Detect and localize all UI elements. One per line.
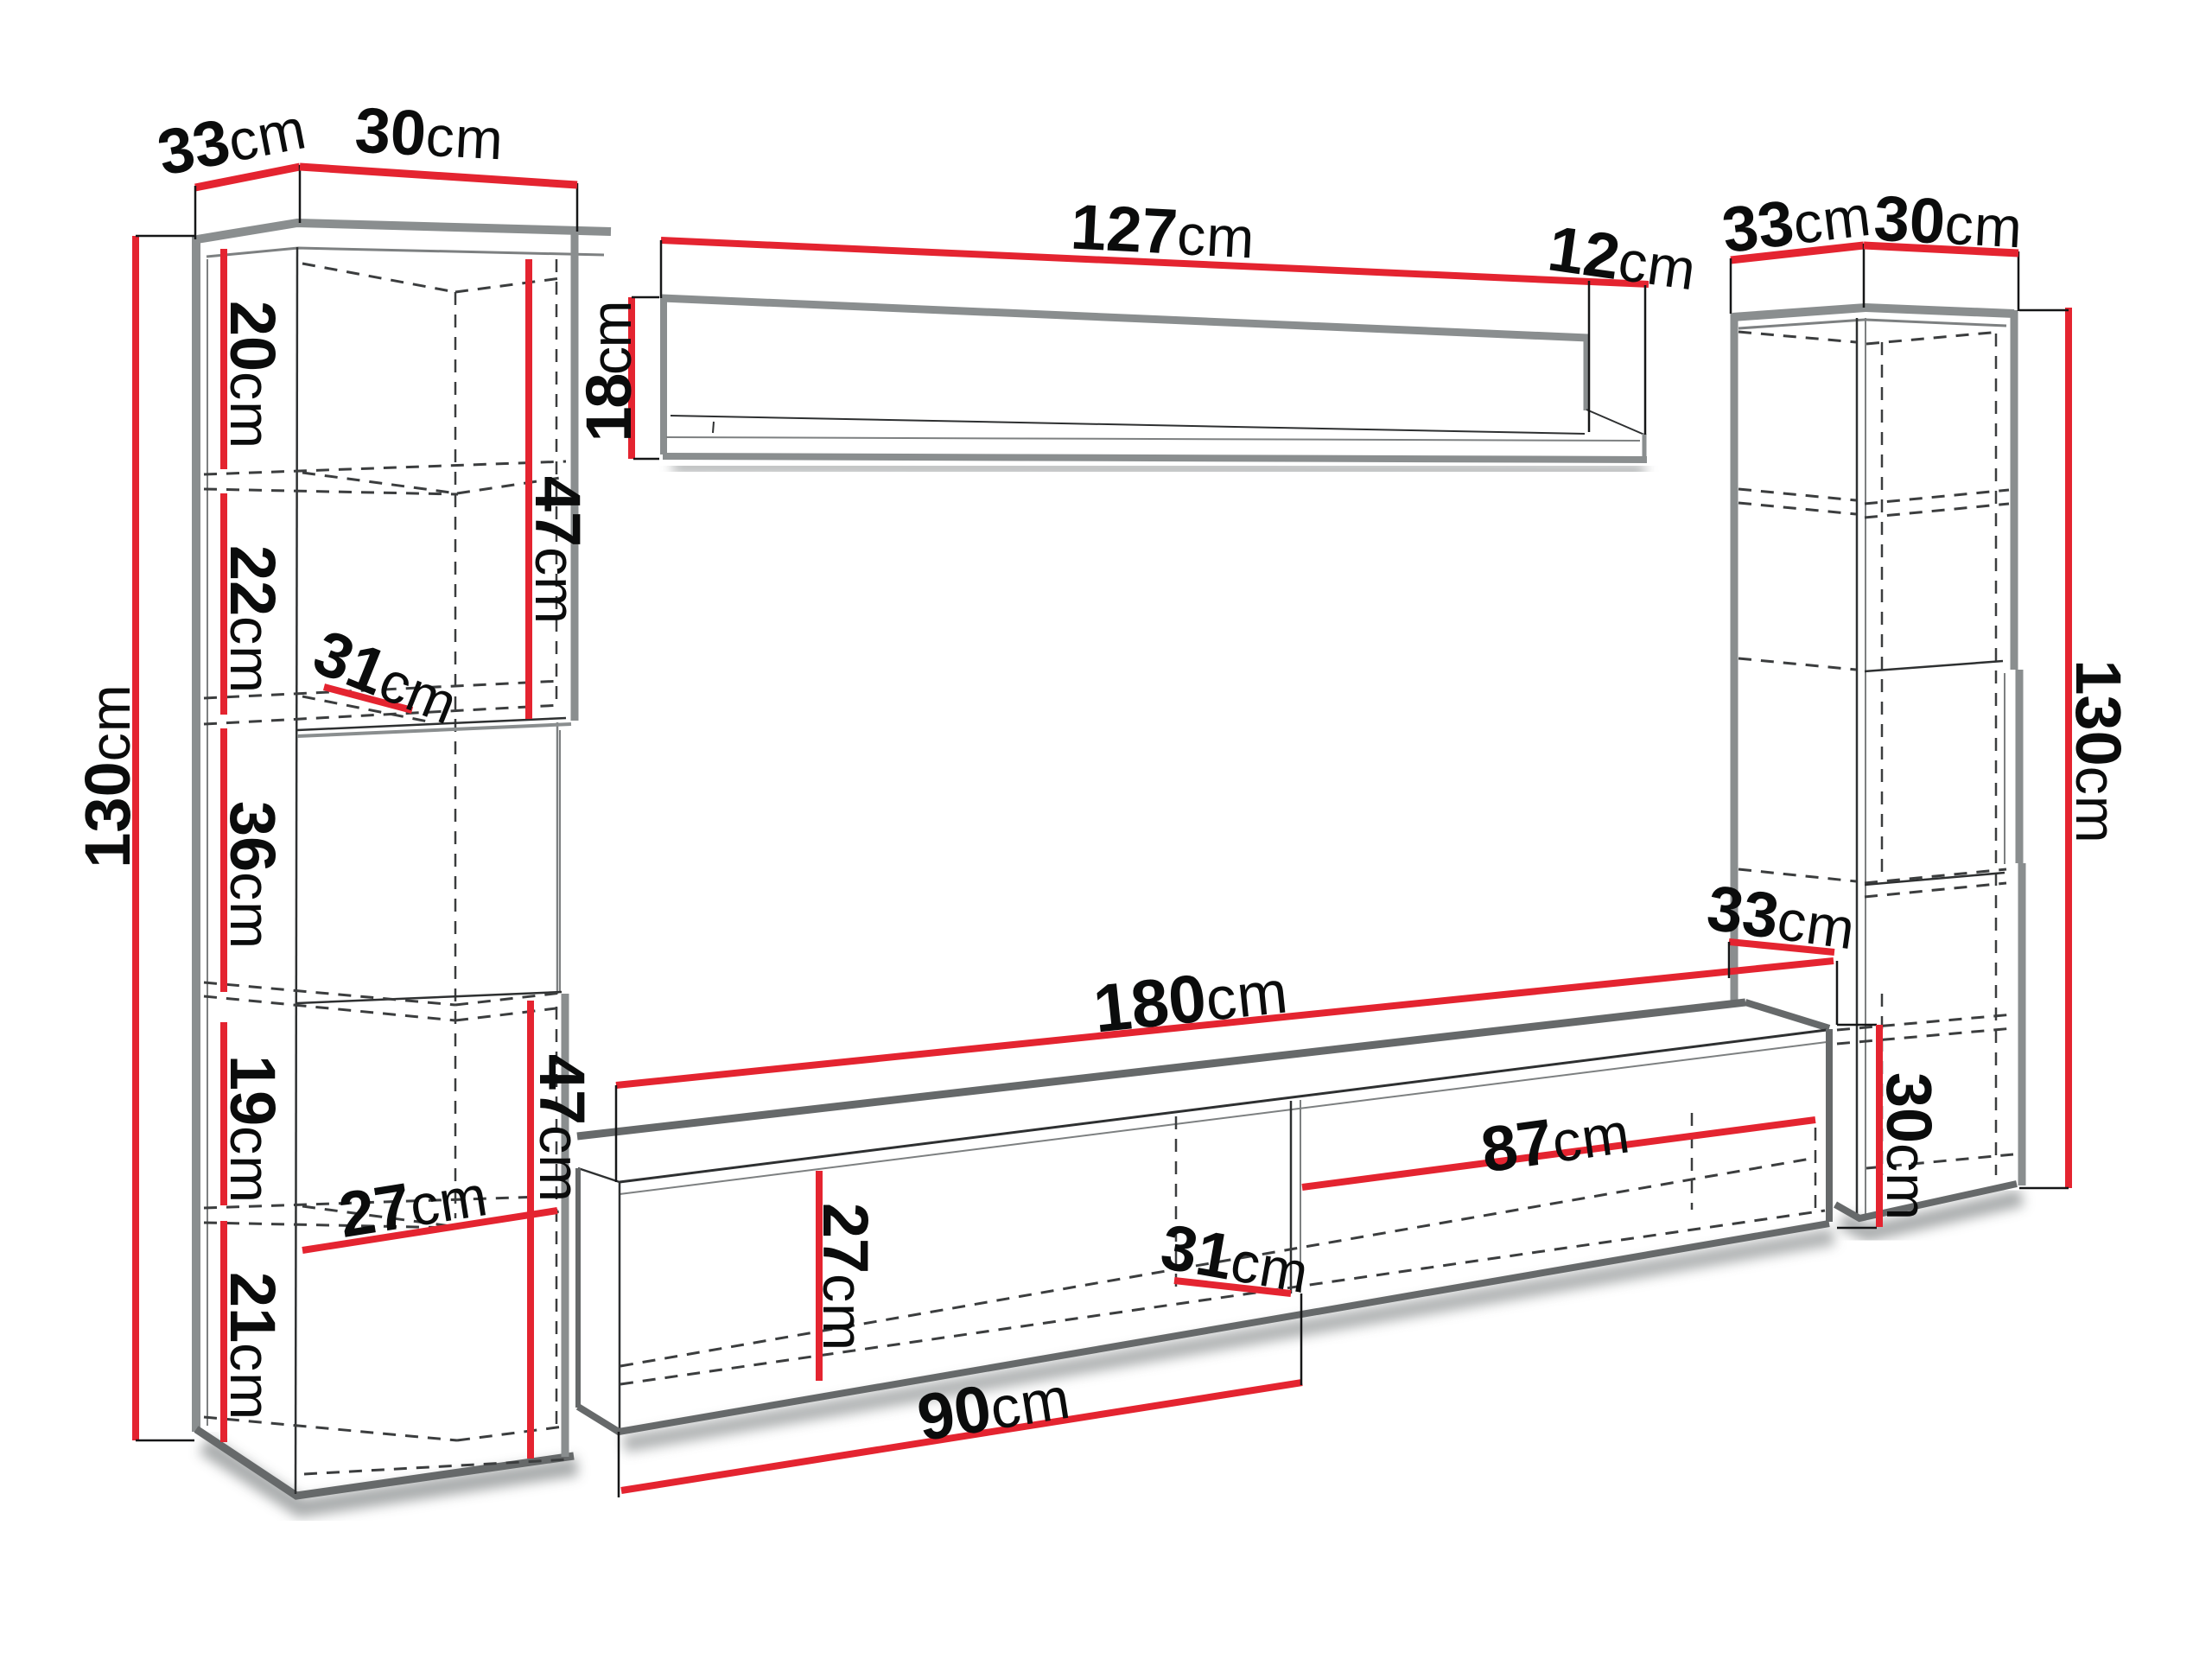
svg-text:130cm: 130cm [72,683,143,868]
svg-text:19cm: 19cm [217,1055,289,1204]
svg-text:22cm: 22cm [217,545,289,694]
svg-text:30cm: 30cm [353,94,505,174]
svg-text:30cm: 30cm [1873,1072,1945,1221]
svg-text:47cm: 47cm [526,1054,598,1203]
svg-text:130cm: 130cm [2063,659,2134,843]
svg-text:21cm: 21cm [217,1272,289,1421]
svg-text:20cm: 20cm [217,301,289,449]
svg-text:47cm: 47cm [522,476,594,625]
svg-text:18cm: 18cm [573,300,645,442]
svg-text:30cm: 30cm [1872,182,2024,262]
svg-text:27cm: 27cm [810,1203,881,1351]
svg-text:36cm: 36cm [217,801,289,950]
